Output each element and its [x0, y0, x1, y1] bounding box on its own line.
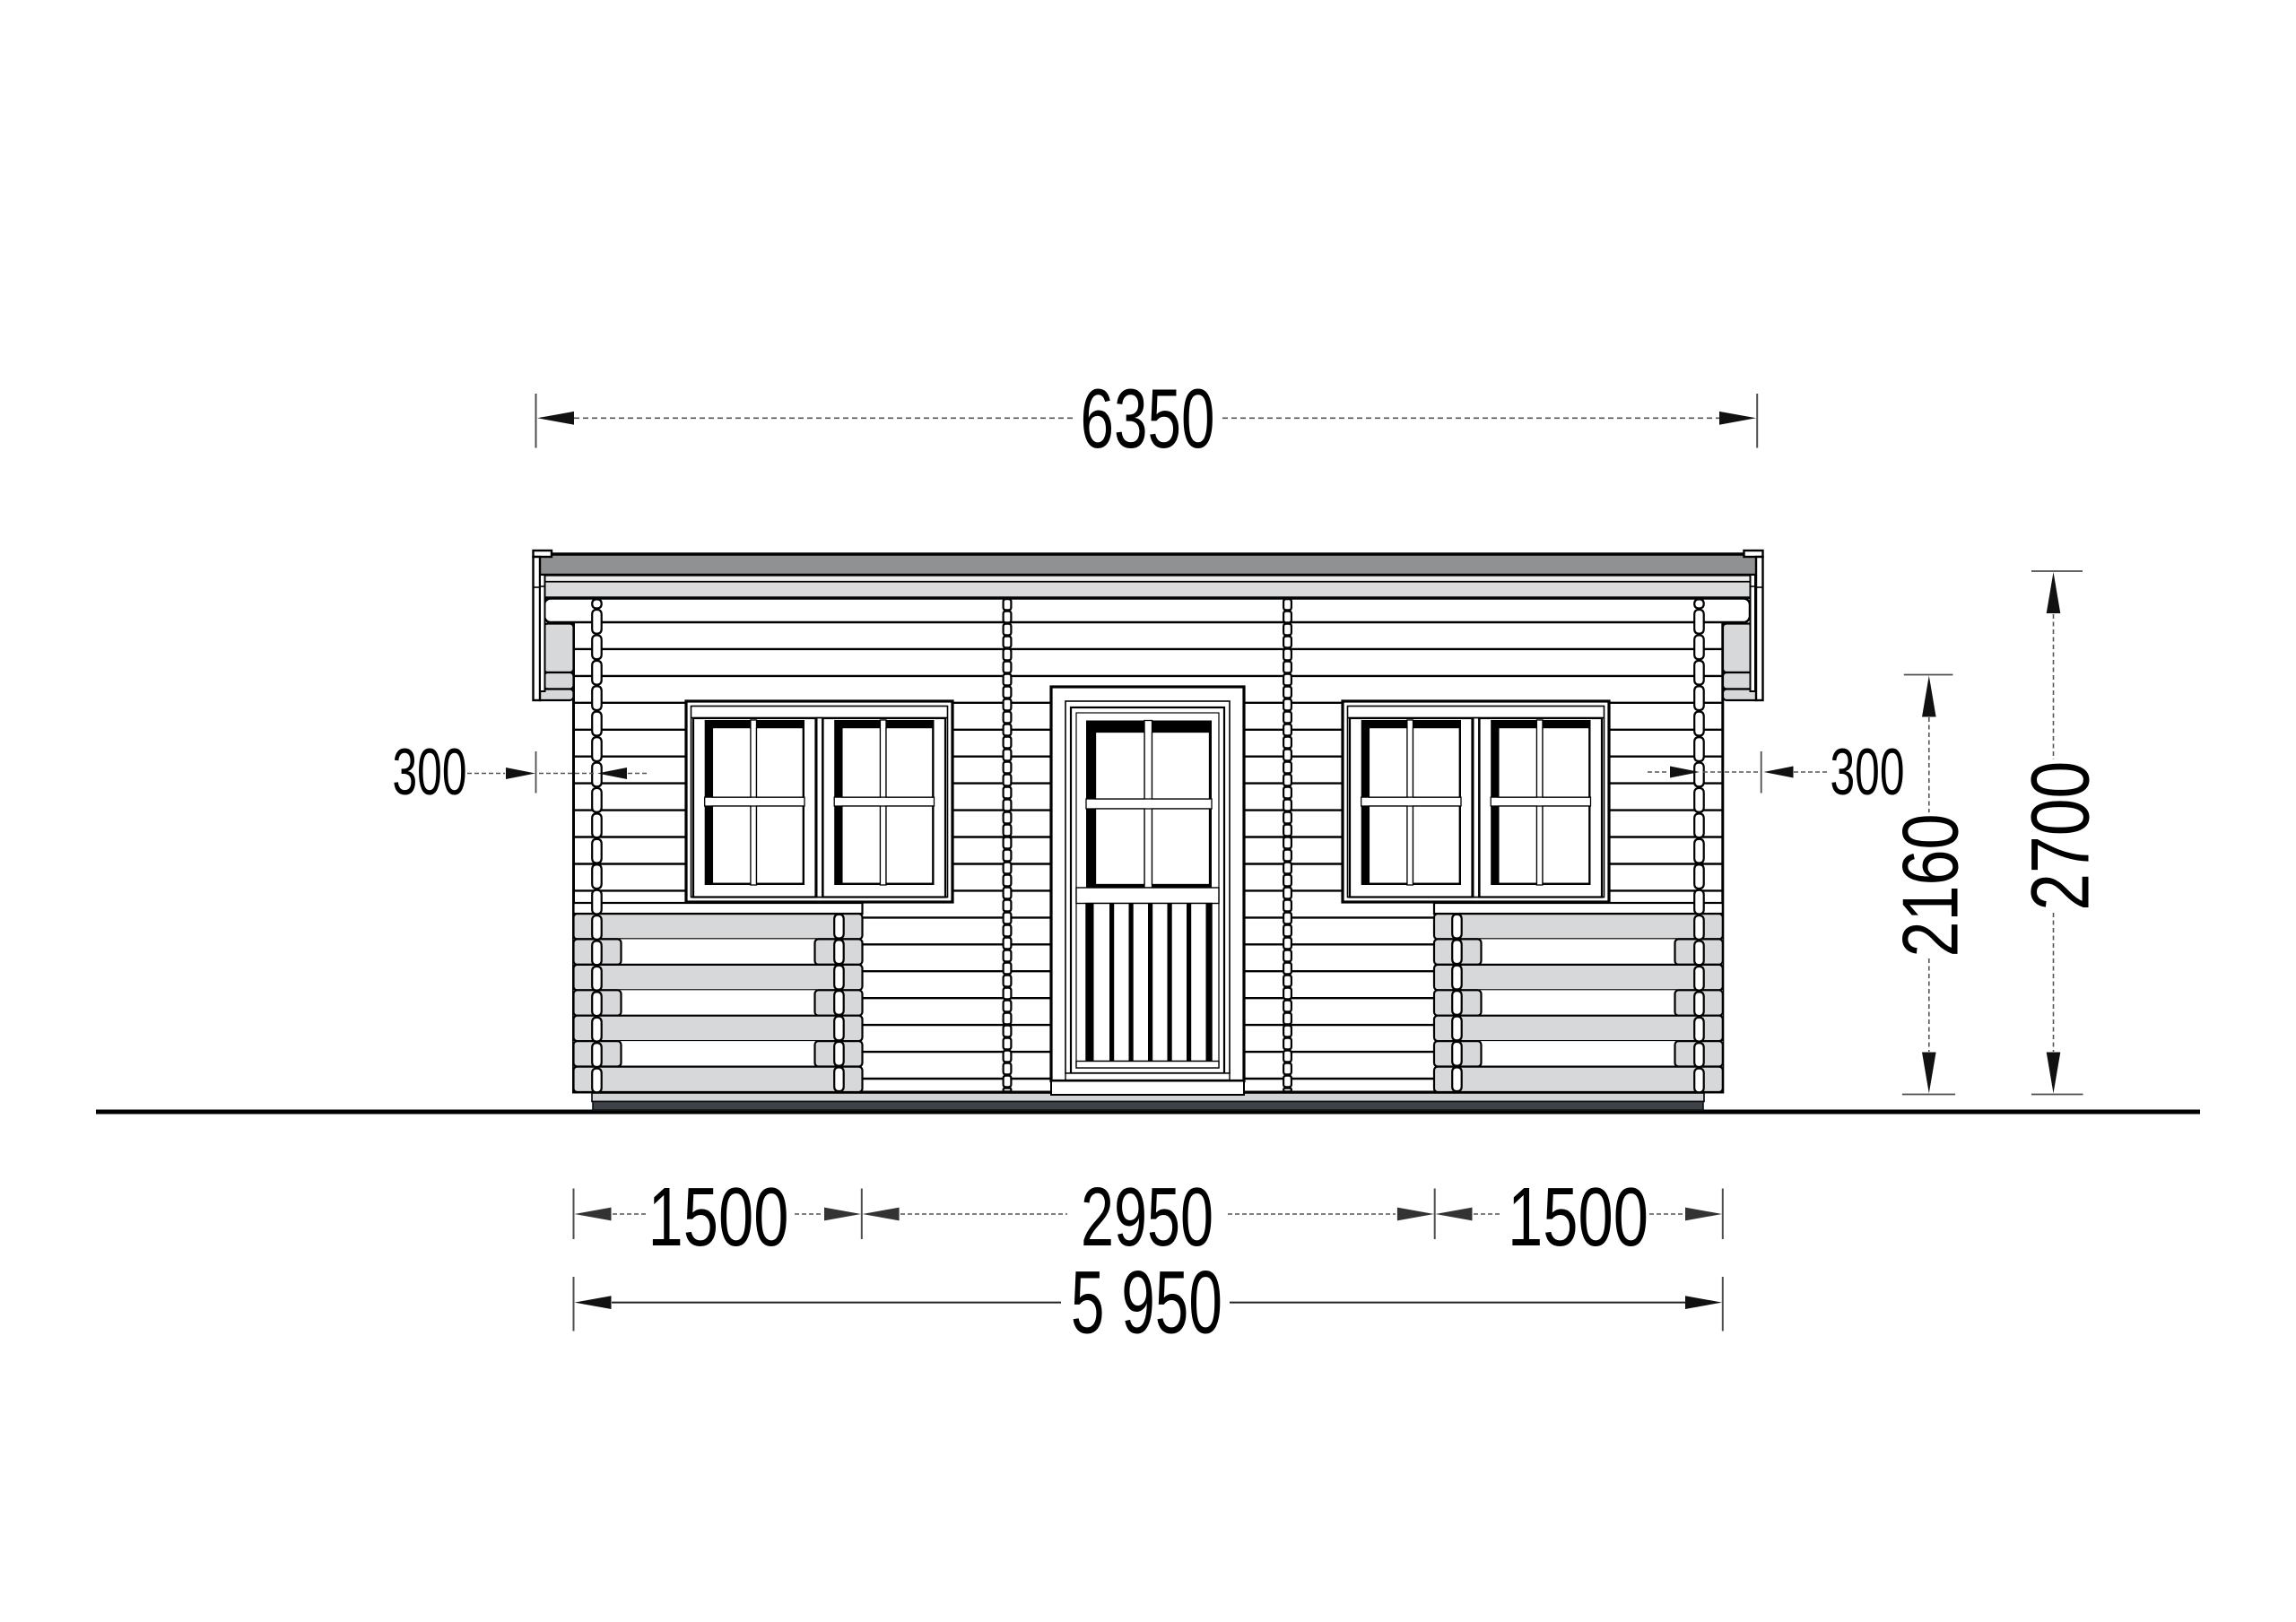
svg-text:300: 300 — [393, 736, 467, 809]
svg-text:1500: 1500 — [648, 1170, 789, 1263]
svg-text:2700: 2700 — [2015, 761, 2107, 911]
svg-text:2160: 2160 — [1886, 814, 1975, 958]
svg-text:6350: 6350 — [1081, 371, 1215, 465]
svg-text:300: 300 — [1831, 736, 1905, 809]
svg-text:2950: 2950 — [1081, 1170, 1213, 1263]
svg-text:1500: 1500 — [1508, 1170, 1648, 1263]
svg-text:5 950: 5 950 — [1071, 1253, 1222, 1352]
